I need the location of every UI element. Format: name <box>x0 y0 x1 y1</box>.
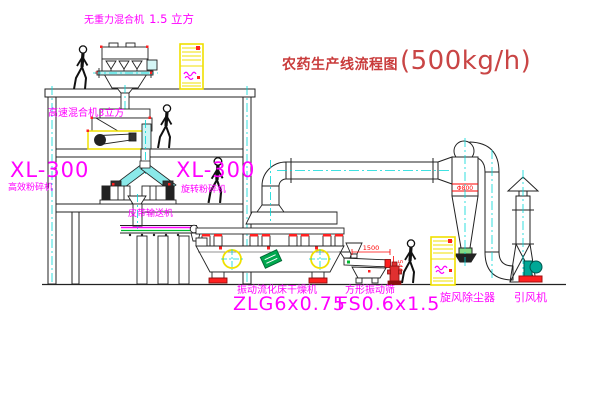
gravity-mixer-machine <box>93 43 158 112</box>
pulverizer-right <box>140 181 176 204</box>
control-cabinet-roof <box>180 44 203 89</box>
sieve-length-dim: 1500 <box>363 244 380 252</box>
roof-slab <box>45 89 255 97</box>
conveyor-leg <box>158 236 168 284</box>
label-fan: 引风机 <box>514 292 547 303</box>
label-crusher-mid-model: XL-300 <box>176 160 255 181</box>
induced-draft-fan <box>519 261 542 282</box>
column-aux <box>72 212 79 284</box>
pesticide-line-flow-diagram: Φ800 1500 540 <box>0 0 600 403</box>
conveyor-leg <box>137 236 147 284</box>
person-on-roof <box>74 46 88 89</box>
label-crusher-left-name: 高效粉碎机 <box>8 184 53 193</box>
label-cyclone: 旋风除尘器 <box>440 292 495 303</box>
conveyor-leg <box>179 236 189 284</box>
control-cabinet-ground <box>431 237 455 285</box>
title-capacity: (500kg/h) <box>400 46 531 76</box>
label-crusher-left-model: XL-300 <box>10 160 89 181</box>
belt-conveyor <box>120 225 200 284</box>
label-belt-conveyor: 皮带输送机 <box>128 210 173 219</box>
dryer-spring-mounts <box>202 234 343 246</box>
mixer-chute <box>142 124 151 149</box>
label-crusher-mid-name: 旋转粉碎机 <box>181 186 226 195</box>
exhaust-hood <box>246 205 337 224</box>
label-gravity-mixer: 无重力混合机 1.5 立方 <box>84 10 194 26</box>
fluid-bed-dryer <box>196 228 352 283</box>
mixer-motor <box>147 60 157 70</box>
title-chinese: 农药生产线流程图 <box>282 54 398 74</box>
person-floor2 <box>158 105 172 148</box>
label-sieve-model: FS0.6x1.5 <box>337 295 440 314</box>
cyclone-diameter-dim: Φ800 <box>457 185 473 192</box>
label-dryer-model: ZLG6x0.75 <box>233 295 346 314</box>
label-speed-mixer: 高速混合机3立方 <box>48 109 124 119</box>
diagram-title: 农药生产线流程图 (500kg/h) <box>282 46 531 76</box>
